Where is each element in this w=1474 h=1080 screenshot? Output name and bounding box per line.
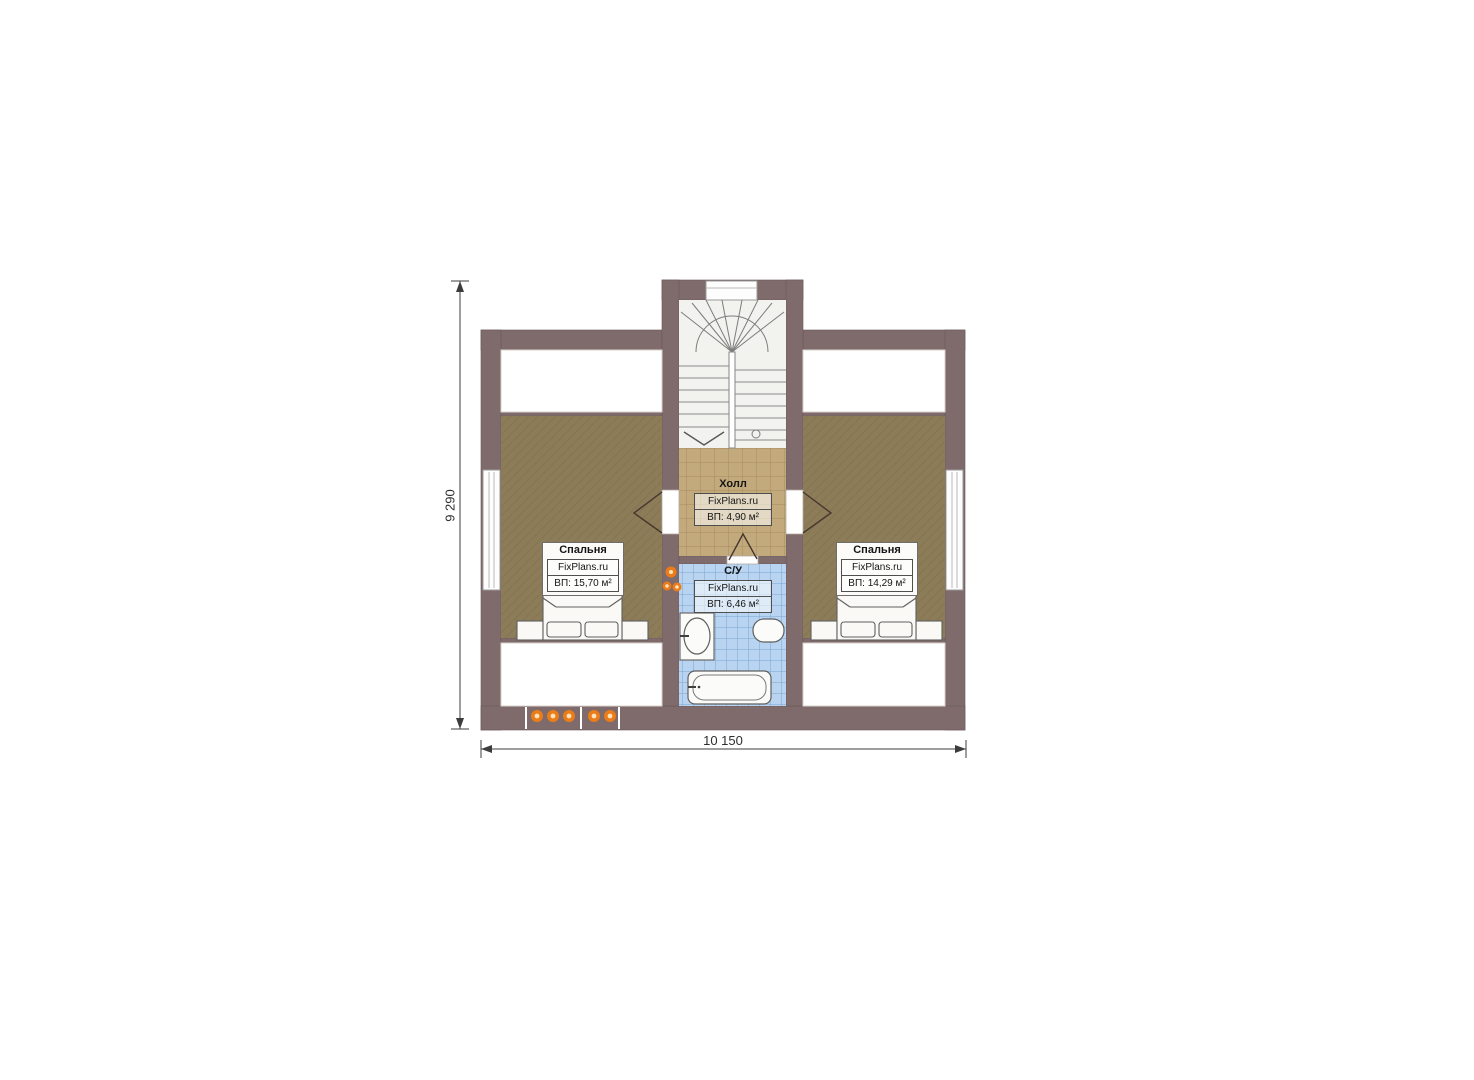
room-area: ВП: 14,29 м²: [842, 575, 912, 591]
watermark: FixPlans.ru: [842, 560, 912, 575]
sink-symbol: [680, 613, 714, 660]
room-area: ВП: 15,70 м²: [548, 575, 618, 591]
room-name: Спальня: [837, 543, 917, 558]
toilet-symbol: [753, 619, 784, 642]
room-label-bathroom: С/У FixPlans.ru ВП: 6,46 м²: [690, 564, 776, 616]
floor-plan-drawing: [0, 0, 1474, 1080]
room-name: Спальня: [543, 543, 623, 558]
room-area: ВП: 6,46 м²: [695, 596, 771, 612]
window-symbol-left: [483, 470, 500, 590]
room-name: Холл: [690, 477, 776, 492]
window-symbol-stair-tower: [706, 281, 757, 300]
watermark: FixPlans.ru: [548, 560, 618, 575]
room-label-hall: Холл FixPlans.ru ВП: 4,90 м²: [690, 477, 776, 529]
floor-plan-page: Спальня FixPlans.ru ВП: 15,70 м² Спальня…: [0, 0, 1474, 1080]
room-label-bedroom-right: Спальня FixPlans.ru ВП: 14,29 м²: [836, 542, 918, 596]
bathtub-symbol: [688, 671, 771, 704]
room-name: С/У: [690, 564, 776, 579]
window-symbol-right: [946, 470, 963, 590]
dimension-label-height: 9 290: [443, 474, 458, 538]
watermark: FixPlans.ru: [695, 581, 771, 596]
room-area: ВП: 4,90 м²: [695, 509, 771, 525]
dimension-label-width: 10 150: [663, 733, 783, 748]
watermark: FixPlans.ru: [695, 494, 771, 509]
room-label-bedroom-left: Спальня FixPlans.ru ВП: 15,70 м²: [542, 542, 624, 596]
